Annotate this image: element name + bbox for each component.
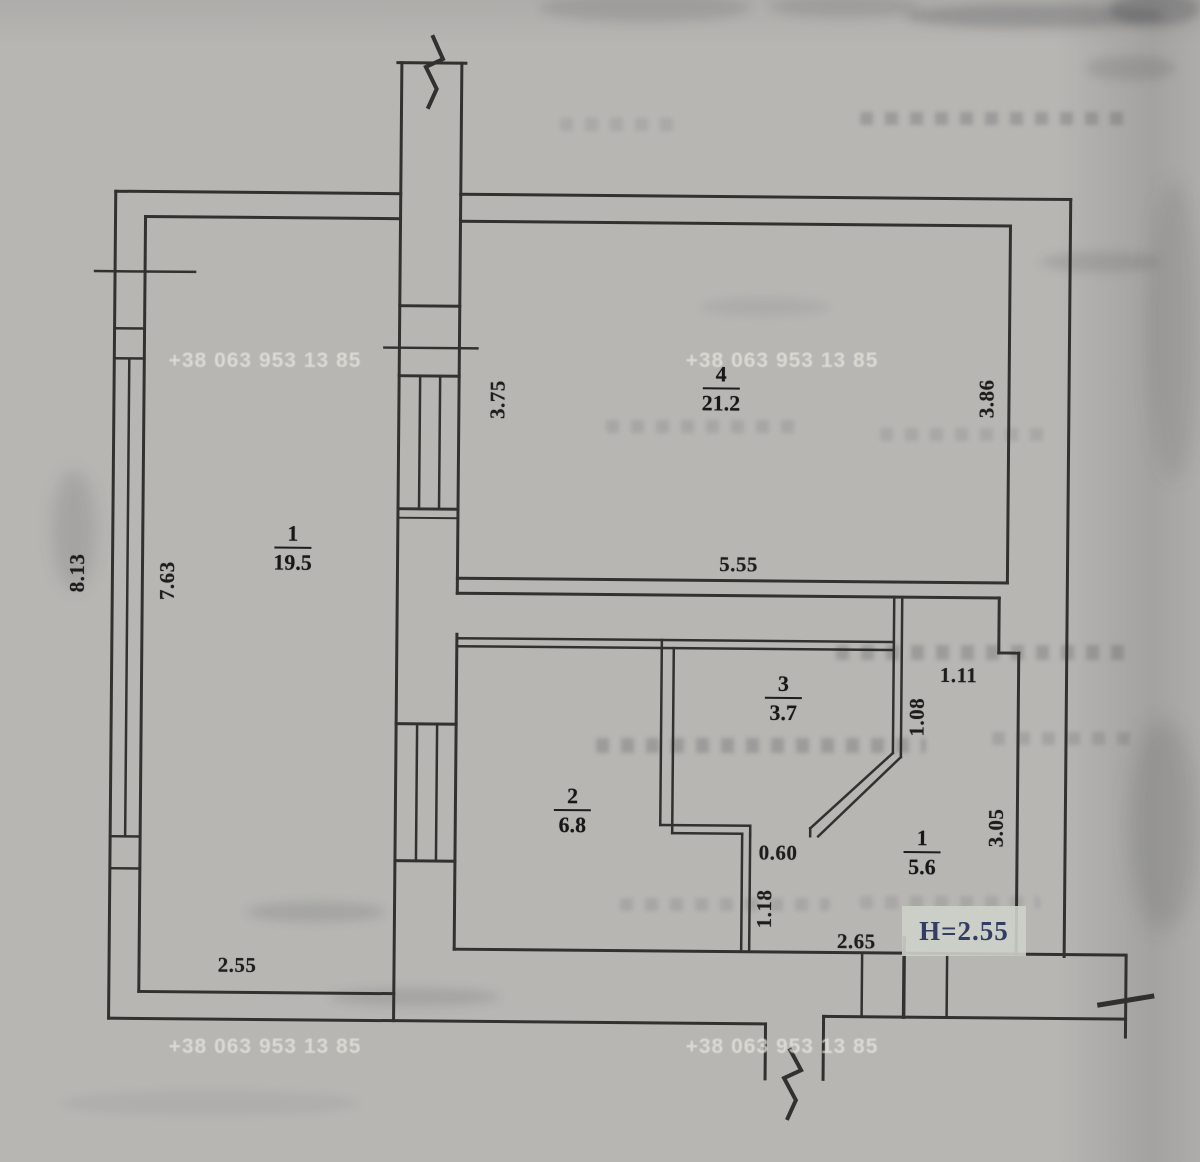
room-label-living: 1 19.5 (273, 522, 312, 575)
room-label-small: 3 3.7 (765, 672, 802, 725)
room-area: 6.8 (554, 813, 591, 836)
dim-passage-depth: 1.18 (752, 889, 777, 928)
dim-room4-depth: 3.86 (974, 379, 999, 418)
dim-niche-depth: 1.08 (905, 698, 930, 737)
phone-watermark: +38 063 953 13 85 (686, 349, 879, 373)
dim-room4-width: 5.55 (719, 552, 758, 577)
room-number: 2 (554, 784, 591, 811)
dim-niche-width: 1.11 (940, 663, 978, 688)
dim-inner-left: 7.63 (155, 561, 180, 600)
phone-watermark: +38 063 953 13 85 (169, 1035, 362, 1059)
room-area: 21.2 (702, 391, 741, 414)
room4-walls (454, 578, 1019, 954)
interior-walls (454, 593, 902, 953)
room-area: 19.5 (273, 551, 312, 574)
floor-plan-drawing (0, 0, 1200, 1162)
scanned-floor-plan-page: 1 19.5 4 21.2 3 3.7 2 6.8 1 5.6 8.13 7.6… (0, 0, 1200, 1162)
dim-shaft-side: 3.75 (485, 380, 510, 419)
bottom-break-mark (784, 1050, 802, 1118)
dim-living-width: 2.55 (218, 953, 257, 978)
dim-opening-width: 0.60 (759, 840, 798, 865)
room-number: 1 (904, 826, 941, 853)
phone-watermark: +38 063 953 13 85 (686, 1035, 879, 1059)
room-label-kitchen: 2 6.8 (554, 784, 591, 837)
dim-hall-width: 2.65 (837, 929, 876, 954)
dim-hall-depth: 3.05 (984, 808, 1009, 847)
phone-watermark: +38 063 953 13 85 (169, 349, 362, 373)
room-number: 3 (765, 672, 802, 699)
room-label-hall: 1 5.6 (903, 826, 940, 879)
top-break-mark (426, 37, 444, 107)
floor-plan: 1 19.5 4 21.2 3 3.7 2 6.8 1 5.6 8.13 7.6… (0, 0, 1200, 1162)
room-area: 3.7 (765, 701, 802, 724)
ceiling-height-note: H=2.55 (902, 906, 1026, 956)
room-number: 1 (274, 522, 311, 549)
room-area: 5.6 (903, 855, 940, 878)
dim-outer-left: 8.13 (65, 553, 90, 592)
shaft-wall (379, 63, 480, 1022)
